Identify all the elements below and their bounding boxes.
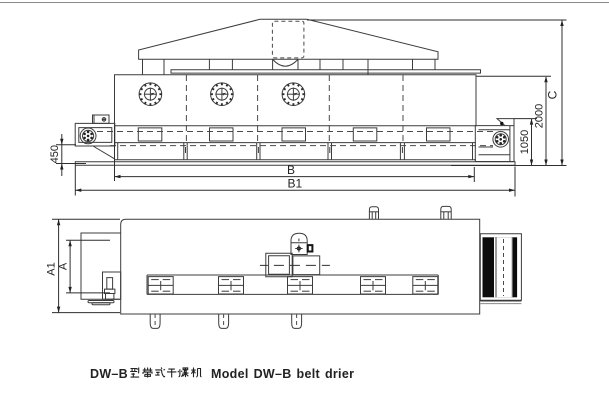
svg-text:B1: B1 xyxy=(288,177,303,191)
svg-text:2000: 2000 xyxy=(534,104,546,128)
svg-text:A1: A1 xyxy=(46,262,58,275)
svg-text:C: C xyxy=(546,90,560,99)
svg-text:450: 450 xyxy=(49,145,61,163)
svg-text:1050: 1050 xyxy=(519,130,531,154)
svg-text:B: B xyxy=(287,163,295,177)
svg-text:Model DW–B belt drier: Model DW–B belt drier xyxy=(211,367,354,381)
svg-text:A: A xyxy=(57,262,69,270)
svg-text:DW–B: DW–B xyxy=(90,367,128,381)
